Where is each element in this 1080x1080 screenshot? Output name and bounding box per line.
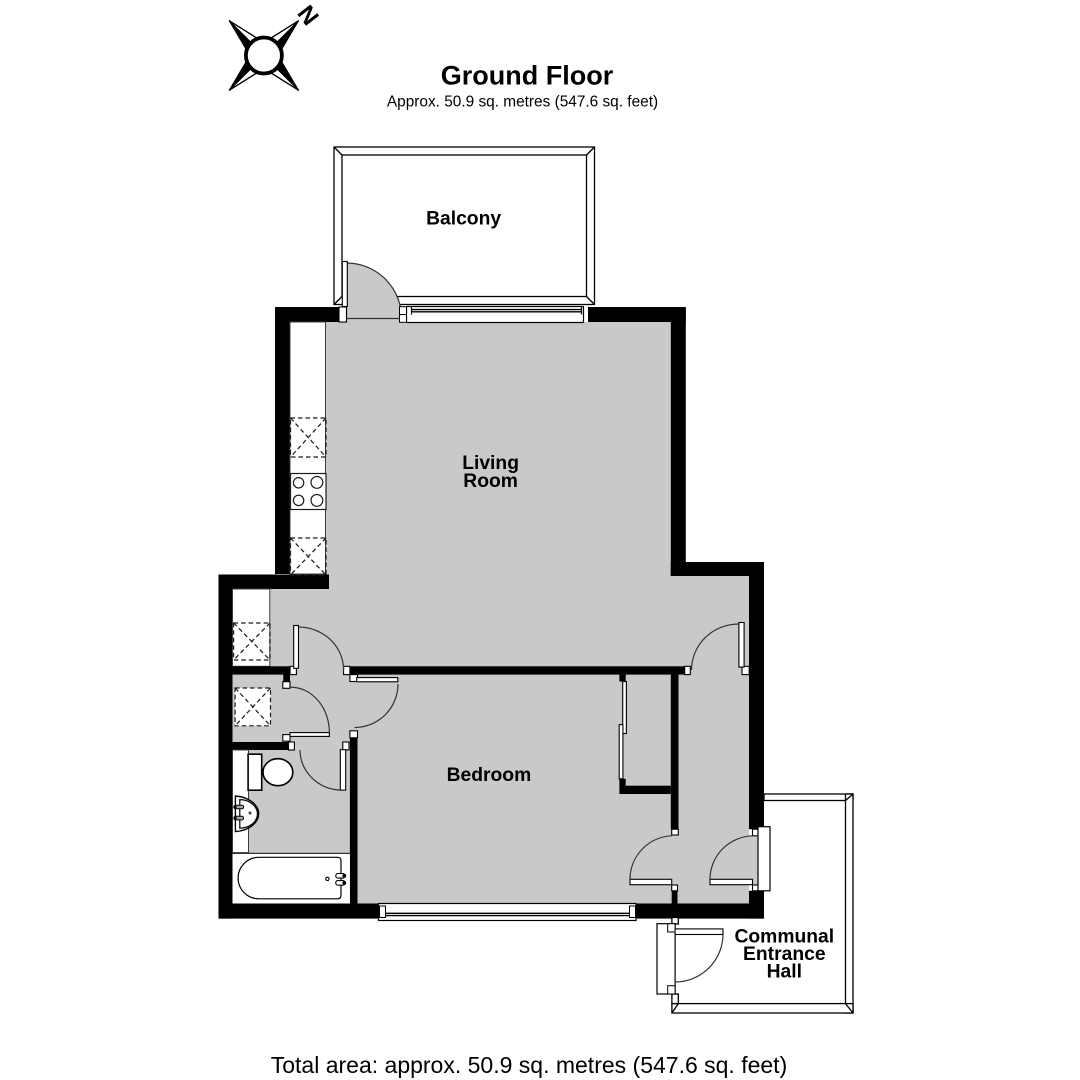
svg-text:Balcony: Balcony [426, 209, 501, 230]
svg-text:Bedroom: Bedroom [447, 765, 532, 786]
svg-text:Total area: approx. 50.9 sq. m: Total area: approx. 50.9 sq. metres (547… [271, 1052, 788, 1078]
svg-text:Hall: Hall [767, 961, 802, 982]
svg-text:Room: Room [463, 471, 518, 492]
svg-text:Ground Floor: Ground Floor [441, 61, 614, 91]
svg-text:Approx. 50.9 sq. metres (547.6: Approx. 50.9 sq. metres (547.6 sq. feet) [387, 94, 658, 111]
